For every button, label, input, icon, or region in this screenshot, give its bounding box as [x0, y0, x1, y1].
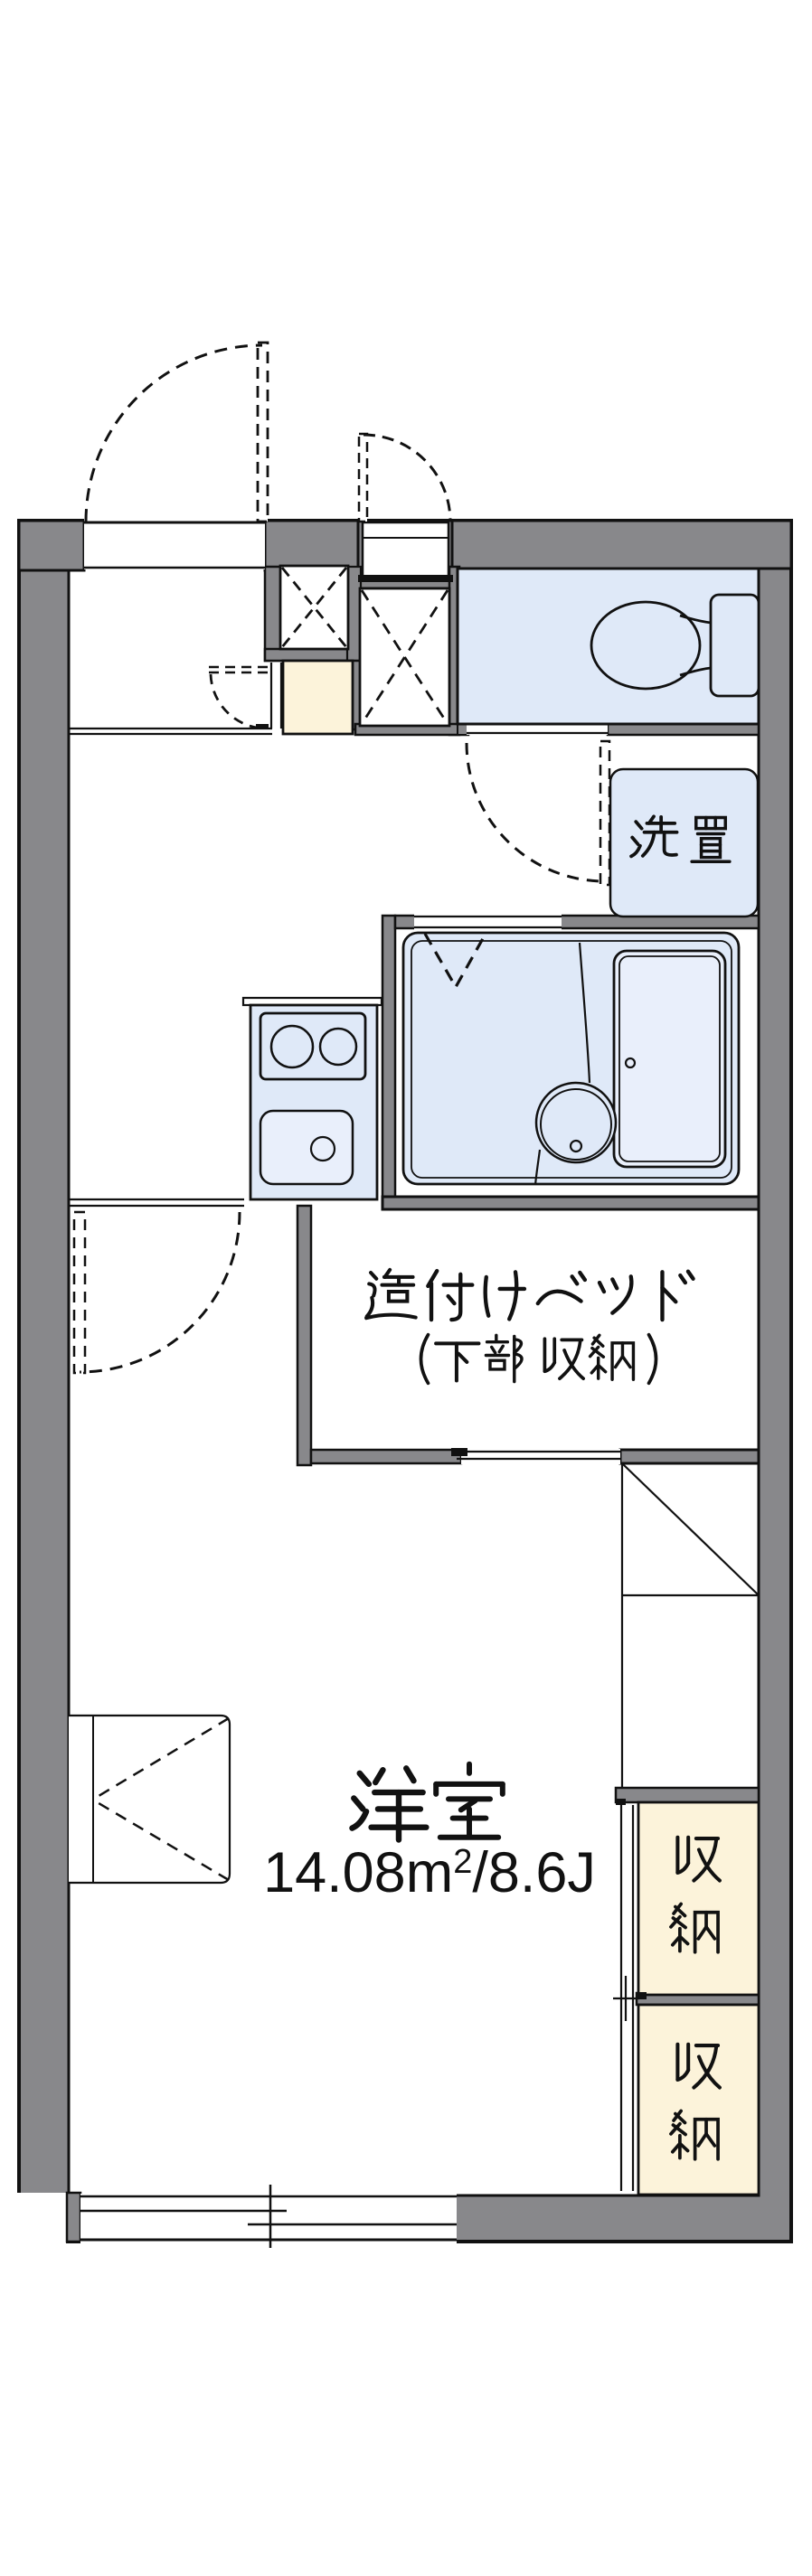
- svg-text:14.08m2/8.6J: 14.08m2/8.6J: [263, 1841, 596, 1904]
